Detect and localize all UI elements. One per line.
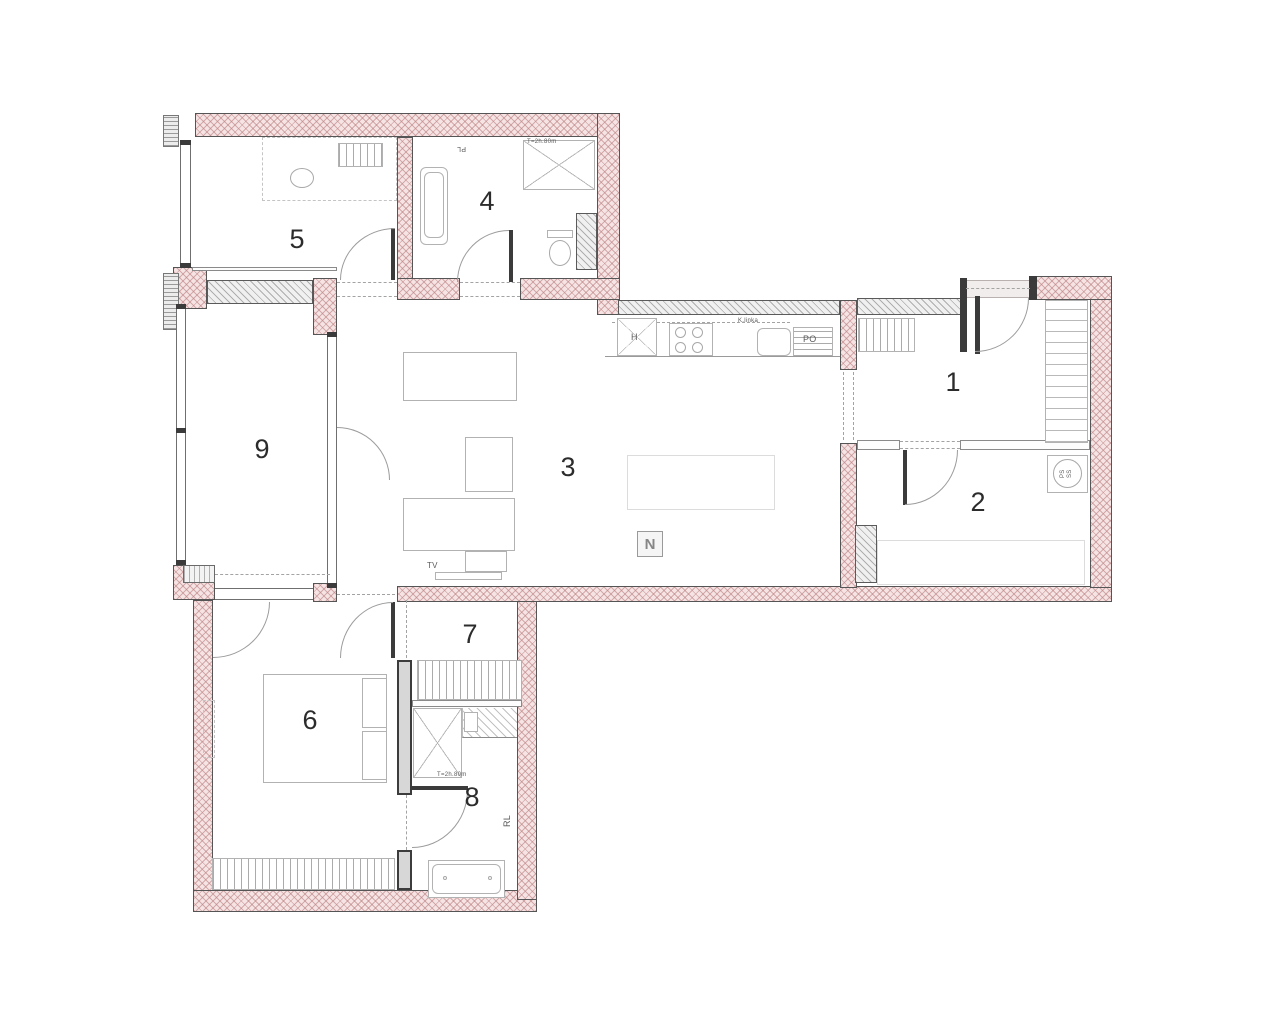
exterior-wall — [1090, 298, 1112, 588]
door-swing-arc — [905, 450, 958, 505]
pillow — [362, 731, 387, 780]
door-swing-arc — [412, 790, 468, 848]
drain — [488, 876, 492, 880]
radiator-room6 — [203, 700, 215, 758]
door-swing-arc — [340, 228, 395, 280]
opening-dash — [460, 282, 520, 283]
opening-dash — [337, 594, 395, 595]
room-label-6: 6 — [302, 707, 317, 734]
insulation-wall — [183, 565, 215, 583]
window-glazing — [176, 307, 186, 565]
counter-edge — [605, 356, 840, 357]
annotation-t-2h-80m: T=2h.80m — [527, 139, 557, 145]
shower-room4 — [523, 140, 595, 190]
annotation-rl: RL — [503, 815, 512, 827]
exterior-wall — [313, 278, 337, 335]
window-jamb — [163, 115, 179, 147]
opening-dash — [853, 372, 854, 440]
door-frame-post — [1029, 276, 1037, 300]
structural-wall — [397, 660, 412, 795]
annotation-t-2h-80m: T=2h.80m — [437, 772, 467, 778]
room-label-7: 7 — [462, 621, 477, 648]
door-frame-post — [176, 304, 186, 309]
room-label-8: 8 — [464, 784, 479, 811]
door-frame-post — [327, 332, 337, 337]
partition-wall — [857, 440, 900, 450]
tv-console — [435, 572, 502, 580]
door-swing-arc — [975, 298, 1029, 352]
annotation-k-linka: K.linka — [738, 318, 758, 324]
sofa-chaise — [465, 551, 507, 572]
door-swing-arc — [340, 602, 393, 658]
opening-dash — [215, 574, 330, 575]
exterior-wall — [397, 137, 413, 280]
door-frame-post — [176, 428, 186, 433]
exterior-wall — [517, 600, 537, 900]
opening-dash — [337, 282, 397, 283]
room-label-9: 9 — [254, 436, 269, 463]
interior-wall — [855, 525, 877, 583]
door-swing-arc — [457, 230, 509, 282]
opening-dash — [966, 288, 1030, 289]
exterior-wall — [1033, 276, 1112, 300]
opening-dash — [406, 600, 407, 658]
shower-room8 — [413, 708, 462, 778]
room-label-2: 2 — [970, 489, 985, 516]
exterior-wall — [840, 300, 857, 370]
door-frame-post — [960, 278, 967, 352]
annotation-ss: SS — [1067, 469, 1073, 478]
shelf-room5 — [338, 143, 383, 167]
sofa — [403, 498, 515, 551]
burner — [675, 342, 686, 353]
opening-dash — [406, 795, 407, 850]
door-frame-post — [509, 230, 513, 282]
door-frame-post — [327, 583, 337, 588]
opening-dash — [900, 441, 960, 442]
door-frame-post — [180, 263, 191, 268]
interior-wall — [618, 300, 840, 315]
door-swing-arc — [337, 427, 390, 480]
opening-dash — [843, 372, 844, 440]
dining-table — [627, 455, 775, 510]
wardrobe-room6 — [212, 858, 395, 890]
door-frame-post — [176, 560, 186, 565]
structural-wall — [397, 850, 412, 890]
kitchen-sink — [757, 328, 791, 356]
annotation-ps: PS — [1060, 469, 1066, 478]
north-indicator: N — [637, 531, 663, 557]
basin-room8 — [464, 712, 478, 732]
exterior-wall — [520, 278, 620, 300]
chair-room5 — [290, 168, 314, 188]
window-glazing — [180, 143, 191, 267]
door-swing-arc — [213, 602, 270, 658]
wardrobe-room1 — [1045, 300, 1088, 443]
partition-wall — [192, 267, 337, 271]
entrance-threshold — [963, 280, 1033, 298]
drain — [443, 876, 447, 880]
bathtub-room4-inner — [424, 172, 444, 238]
room-label-3: 3 — [560, 454, 575, 481]
door-frame-post — [180, 140, 191, 145]
room-label-1: 1 — [945, 369, 960, 396]
opening-dash — [337, 296, 397, 297]
exterior-wall — [397, 586, 1112, 602]
sofa — [403, 352, 517, 401]
toilet-bowl — [549, 240, 571, 266]
pillow — [362, 678, 387, 728]
exterior-wall — [397, 278, 460, 300]
bed-room2 — [877, 540, 1085, 585]
window-glazing — [327, 335, 337, 588]
interior-wall — [576, 213, 597, 270]
burner — [675, 327, 686, 338]
armchair — [465, 437, 513, 492]
burner — [692, 327, 703, 338]
interior-wall — [207, 280, 313, 304]
wardrobe-room7 — [417, 660, 522, 700]
closet-room1 — [858, 318, 915, 352]
partition-wall — [412, 700, 522, 707]
annotation-h: H — [631, 333, 638, 342]
annotation-pl: PL — [457, 145, 466, 152]
exterior-wall — [195, 113, 620, 137]
window-glazing — [215, 588, 313, 600]
opening-dash — [460, 296, 520, 297]
floorplan-canvas: N549312768PLT=2h.80mK.linkaHPOPSSSTVT=2h… — [0, 0, 1280, 1033]
toilet-tank — [547, 230, 573, 238]
interior-wall — [857, 298, 963, 315]
opening-dash — [900, 448, 960, 449]
annotation-tv: TV — [427, 562, 438, 570]
annotation-po: PO — [803, 335, 817, 344]
burner — [692, 342, 703, 353]
room-label-4: 4 — [479, 188, 494, 215]
room-label-5: 5 — [289, 226, 304, 253]
